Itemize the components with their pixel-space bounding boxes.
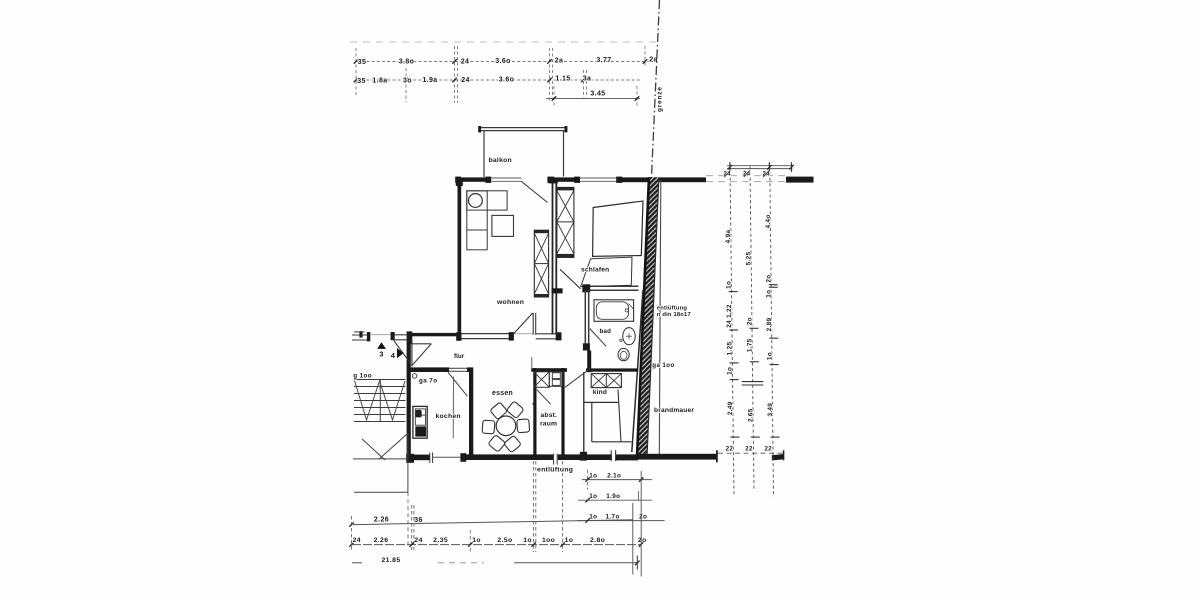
svg-text:entlüftung: entlüftung	[537, 467, 573, 474]
svg-text:1.25: 1.25	[726, 342, 733, 356]
svg-text:1oo: 1oo	[542, 537, 555, 544]
svg-text:4.9a: 4.9a	[725, 230, 732, 244]
svg-text:2o: 2o	[746, 317, 753, 325]
svg-text:raum: raum	[540, 421, 557, 428]
svg-text:35: 35	[357, 78, 366, 85]
svg-text:3.45: 3.45	[590, 91, 605, 98]
svg-text:1.75: 1.75	[747, 338, 754, 352]
svg-text:1o: 1o	[727, 367, 734, 375]
svg-text:kind: kind	[593, 389, 607, 396]
svg-text:35: 35	[358, 59, 367, 66]
svg-text:ga 7o: ga 7o	[419, 377, 437, 384]
svg-text:ga 1oo: ga 1oo	[652, 362, 674, 369]
svg-text:entlüftung: entlüftung	[657, 306, 688, 312]
svg-text:3.77: 3.77	[596, 57, 611, 64]
svg-text:1o: 1o	[766, 290, 773, 298]
svg-text:2.26: 2.26	[374, 516, 389, 523]
svg-text:schlafen: schlafen	[581, 267, 609, 274]
svg-text:1o: 1o	[589, 493, 597, 500]
svg-text:5.25: 5.25	[746, 252, 753, 266]
svg-text:2.49: 2.49	[727, 401, 734, 415]
svg-text:24: 24	[461, 77, 470, 84]
svg-text:abst.: abst.	[541, 412, 558, 419]
svg-text:2o: 2o	[639, 513, 647, 520]
svg-text:24: 24	[414, 537, 422, 544]
svg-text:wohnen: wohnen	[496, 299, 524, 306]
svg-text:1.8a: 1.8a	[372, 78, 387, 85]
svg-text:22: 22	[745, 446, 753, 452]
svg-text:grenze: grenze	[657, 86, 664, 112]
svg-text:1o: 1o	[523, 537, 532, 544]
svg-text:n din 18o17: n din 18o17	[657, 312, 691, 318]
svg-text:balkon: balkon	[489, 157, 512, 164]
svg-text:2.1o: 2.1o	[607, 472, 621, 479]
svg-text:bad: bad	[600, 328, 612, 335]
svg-text:21.85: 21.85	[381, 557, 400, 564]
svg-text:3a: 3a	[583, 76, 592, 83]
svg-text:1o: 1o	[589, 472, 597, 479]
svg-text:kochen: kochen	[436, 413, 461, 420]
svg-text:1o: 1o	[766, 352, 773, 360]
svg-text:1.9o: 1.9o	[606, 493, 620, 500]
svg-text:essen: essen	[492, 390, 513, 397]
svg-text:3.6o: 3.6o	[499, 77, 515, 84]
svg-text:1o: 1o	[726, 281, 733, 289]
svg-text:1.15: 1.15	[555, 76, 570, 83]
svg-text:3.8o: 3.8o	[399, 59, 415, 66]
svg-text:1.7o: 1.7o	[605, 513, 619, 520]
svg-text:brandmauer: brandmauer	[654, 407, 694, 414]
svg-text:24: 24	[461, 59, 470, 66]
svg-text:3o: 3o	[403, 78, 412, 85]
svg-text:1.9a: 1.9a	[422, 77, 437, 84]
svg-text:1o: 1o	[565, 537, 574, 544]
svg-text:2.35: 2.35	[433, 537, 448, 544]
svg-text:4: 4	[391, 351, 396, 360]
svg-text:2.65: 2.65	[748, 408, 755, 422]
svg-text:22: 22	[765, 446, 773, 452]
svg-text:24 1.22: 24 1.22	[726, 304, 733, 328]
svg-text:3.49: 3.49	[767, 403, 774, 417]
svg-text:4.4o: 4.4o	[765, 214, 772, 228]
svg-text:2.26: 2.26	[374, 537, 389, 544]
svg-text:2.89: 2.89	[766, 318, 773, 332]
svg-text:1o: 1o	[472, 537, 481, 544]
svg-text:2o: 2o	[766, 275, 773, 283]
svg-text:flur: flur	[454, 353, 465, 360]
svg-text:3: 3	[379, 350, 384, 359]
svg-text:36: 36	[414, 517, 423, 524]
svg-text:24: 24	[353, 537, 361, 544]
svg-text:2.5o: 2.5o	[497, 537, 512, 544]
svg-text:3.6o: 3.6o	[495, 58, 511, 65]
svg-text:2a: 2a	[555, 58, 564, 65]
svg-text:2.8o: 2.8o	[590, 537, 605, 544]
svg-text:1o: 1o	[589, 513, 597, 520]
svg-text:g 1oo: g 1oo	[353, 373, 372, 380]
svg-text:22: 22	[726, 446, 734, 452]
